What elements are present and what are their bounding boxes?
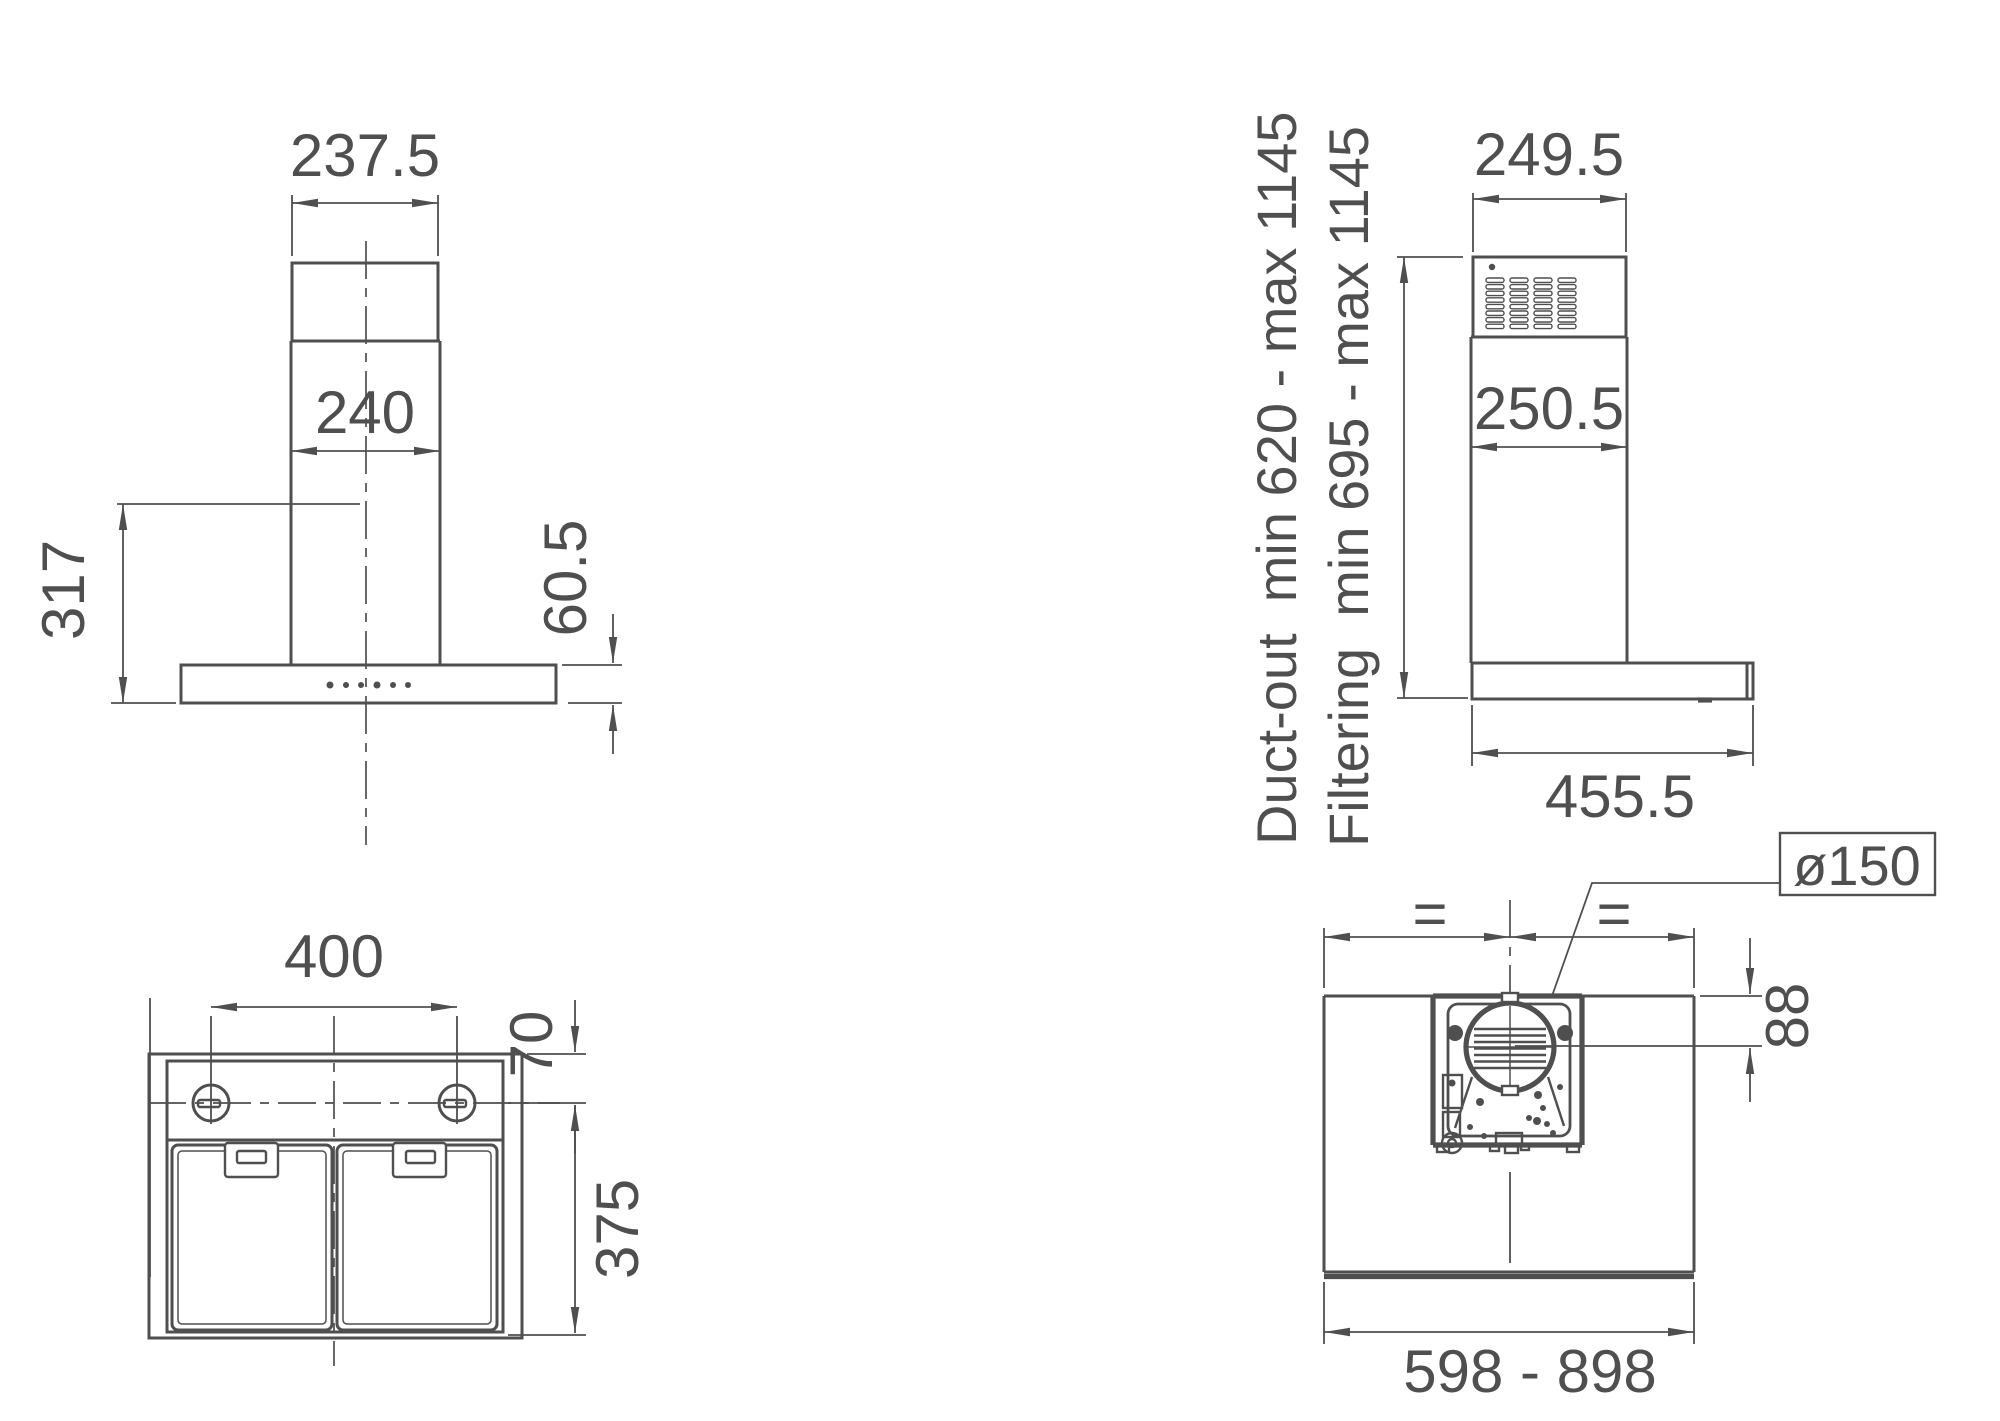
filter-handle-notch <box>225 1143 278 1177</box>
motor-unit <box>1433 993 1582 1153</box>
front-view: 237.5 240 317 60.5 <box>30 122 622 845</box>
terminal-block <box>1442 1075 1462 1153</box>
bottom-view: 400 70 375 <box>148 923 651 1366</box>
dim-width-range: 598 - 898 <box>1403 1338 1657 1405</box>
dim-bottom-depth: 375 <box>584 1179 651 1279</box>
equal-mark-left: = <box>1412 880 1447 947</box>
top-view: = = ø150 88 598 - 898 <box>1324 833 1935 1405</box>
bottom-inner-outline <box>167 1061 503 1332</box>
front-hood-body <box>181 665 556 703</box>
label-duct-diameter: ø150 <box>1793 834 1921 897</box>
dim-front-chimney-width: 240 <box>315 379 415 446</box>
label-duct-out-height: Duct-out min 620 - max 1145 <box>1245 111 1308 845</box>
front-upper-chimney <box>292 263 438 341</box>
side-upper-chimney <box>1473 257 1626 337</box>
dim-side-chimney-depth: 250.5 <box>1474 375 1624 442</box>
dim-side-top-depth: 249.5 <box>1474 121 1624 188</box>
technical-drawing-canvas: 237.5 240 317 60.5 <box>0 0 2000 1421</box>
dim-lamp-top-offset: 70 <box>498 1011 565 1078</box>
dim-front-top-width: 237.5 <box>290 122 440 189</box>
label-filtering-height: Filtering min 695 - max 1145 <box>1317 126 1380 847</box>
control-buttons <box>327 682 412 689</box>
duct-leader-line <box>1552 883 1780 996</box>
dim-lamp-spacing: 400 <box>284 923 384 990</box>
dim-duct-offset: 88 <box>1754 983 1821 1050</box>
dim-front-body-height: 60.5 <box>532 520 599 637</box>
dim-front-height: 317 <box>30 540 97 640</box>
dim-side-body-depth: 455.5 <box>1545 763 1695 830</box>
vent-grille <box>1486 278 1576 329</box>
grease-filter-left <box>172 1143 332 1330</box>
filter-handle-notch <box>393 1143 446 1177</box>
equal-mark-right: = <box>1596 880 1631 947</box>
grease-filter-right <box>337 1143 497 1330</box>
pilot-dot <box>1489 264 1495 270</box>
side-view: 249.5 250.5 455.5 Duct-out min 620 - max… <box>1245 111 1753 847</box>
side-hood-body <box>1472 663 1753 699</box>
